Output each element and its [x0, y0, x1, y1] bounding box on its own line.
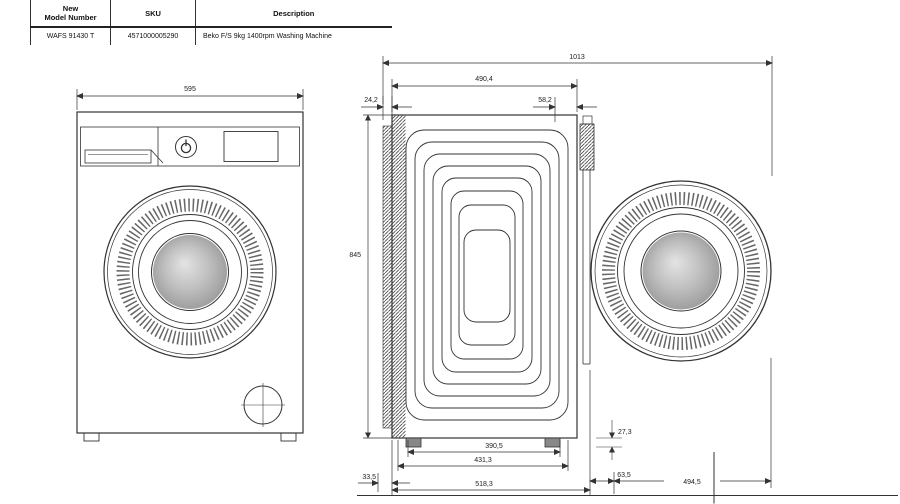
dim-front-width-label: 595: [184, 86, 196, 93]
side-body: [392, 115, 577, 438]
dimension-drawing: 595: [0, 0, 900, 504]
side-view: 1013 490,4 24,2 58,2 845: [349, 54, 898, 504]
dim-rear-clearance-label: 33,5: [362, 474, 376, 481]
rear-hoses: [383, 126, 392, 428]
dim-door-offset-label: 63,5: [617, 472, 631, 479]
front-view: 595: [77, 86, 303, 441]
dim-feet-outer-label: 431,3: [474, 457, 492, 464]
dim-foot-height-label: 27,3: [618, 429, 632, 436]
dim-overall-depth-label: 1013: [569, 54, 585, 61]
power-knob-icon: [176, 137, 197, 158]
open-door-edge: [580, 116, 594, 364]
side-panel-ribs: [406, 130, 568, 420]
dim-feet-outer: [398, 440, 568, 471]
dim-rear-offset-label: 24,2: [364, 97, 378, 104]
door-glass-rear: [643, 233, 720, 310]
dim-height-label: 845: [349, 252, 361, 259]
dim-base-depth: [392, 370, 590, 495]
display-panel: [224, 132, 278, 162]
front-feet: [84, 433, 296, 441]
dim-foot-height: [596, 420, 622, 460]
rear-panel-band: [393, 116, 406, 438]
dim-door-offset: [590, 472, 614, 494]
dim-base-depth-label: 518,3: [475, 481, 493, 488]
detergent-drawer: [85, 150, 163, 163]
pump-filter-cover: [241, 383, 285, 427]
dim-door-width: [614, 358, 771, 488]
side-feet: [406, 438, 560, 447]
dim-front-offset-label: 58,2: [538, 97, 552, 104]
dim-body-depth-label: 490,4: [475, 76, 493, 83]
dim-door-width-label: 494,5: [683, 479, 701, 486]
door-rear-view: [591, 181, 771, 361]
dim-feet-inner-label: 390,5: [485, 443, 503, 450]
drum-glass: [153, 235, 227, 309]
dim-feet-inner: [408, 440, 560, 457]
front-door: [104, 186, 276, 358]
